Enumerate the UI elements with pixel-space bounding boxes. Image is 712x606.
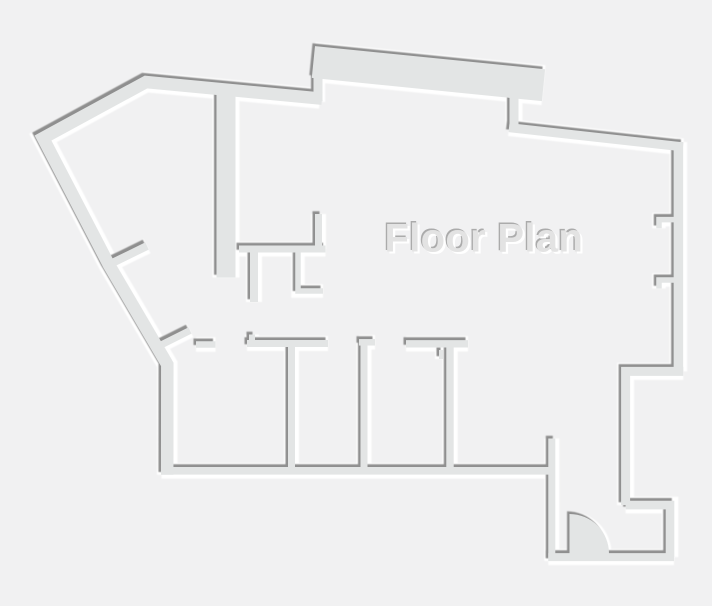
svg-text:Floor Plan: Floor Plan [385, 217, 584, 261]
